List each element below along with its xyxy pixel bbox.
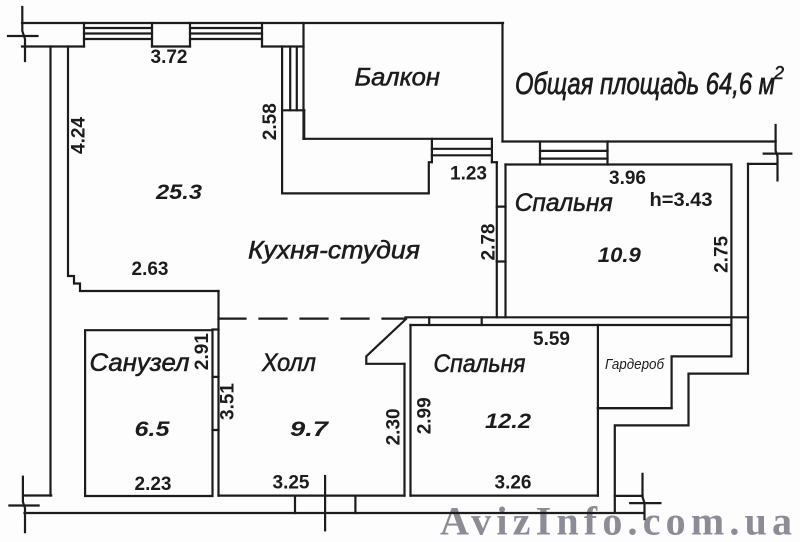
svg-text:2: 2 bbox=[773, 63, 784, 83]
svg-text:1.23: 1.23 bbox=[450, 164, 487, 185]
svg-text:2.99: 2.99 bbox=[415, 397, 436, 434]
svg-text:Балкон: Балкон bbox=[355, 64, 441, 92]
svg-text:3.26: 3.26 bbox=[495, 473, 532, 494]
svg-text:Санузел: Санузел bbox=[90, 349, 190, 377]
svg-text:2.78: 2.78 bbox=[479, 224, 500, 261]
svg-text:Спальня: Спальня bbox=[515, 189, 613, 217]
svg-text:25.3: 25.3 bbox=[155, 181, 202, 204]
svg-text:3.96: 3.96 bbox=[609, 168, 646, 189]
svg-text:Гардероб: Гардероб bbox=[605, 356, 664, 373]
svg-text:Общая площадь 64,6 м: Общая площадь 64,6 м bbox=[515, 66, 775, 101]
svg-text:Холл: Холл bbox=[261, 349, 316, 377]
svg-text:2.91: 2.91 bbox=[192, 333, 213, 370]
svg-text:h=3.43: h=3.43 bbox=[650, 190, 713, 211]
svg-text:Кухня-студия: Кухня-студия bbox=[248, 237, 420, 265]
svg-text:3.51: 3.51 bbox=[218, 383, 239, 420]
svg-text:Спальня: Спальня bbox=[434, 350, 526, 378]
svg-text:2.75: 2.75 bbox=[712, 235, 733, 272]
svg-text:3.25: 3.25 bbox=[273, 472, 310, 493]
svg-text:2.23: 2.23 bbox=[135, 474, 172, 495]
svg-text:6.5: 6.5 bbox=[135, 418, 170, 441]
svg-text:4.24: 4.24 bbox=[69, 117, 90, 154]
svg-text:2.30: 2.30 bbox=[384, 408, 405, 445]
svg-text:AvizInfo.com.ua: AvizInfo.com.ua bbox=[440, 499, 797, 542]
svg-text:5.59: 5.59 bbox=[533, 329, 570, 350]
svg-text:12.2: 12.2 bbox=[485, 410, 531, 433]
svg-text:2.63: 2.63 bbox=[132, 259, 169, 280]
svg-text:10.9: 10.9 bbox=[598, 244, 641, 267]
svg-text:2.58: 2.58 bbox=[260, 103, 281, 140]
svg-text:3.72: 3.72 bbox=[151, 47, 188, 68]
svg-text:9.7: 9.7 bbox=[290, 418, 330, 441]
